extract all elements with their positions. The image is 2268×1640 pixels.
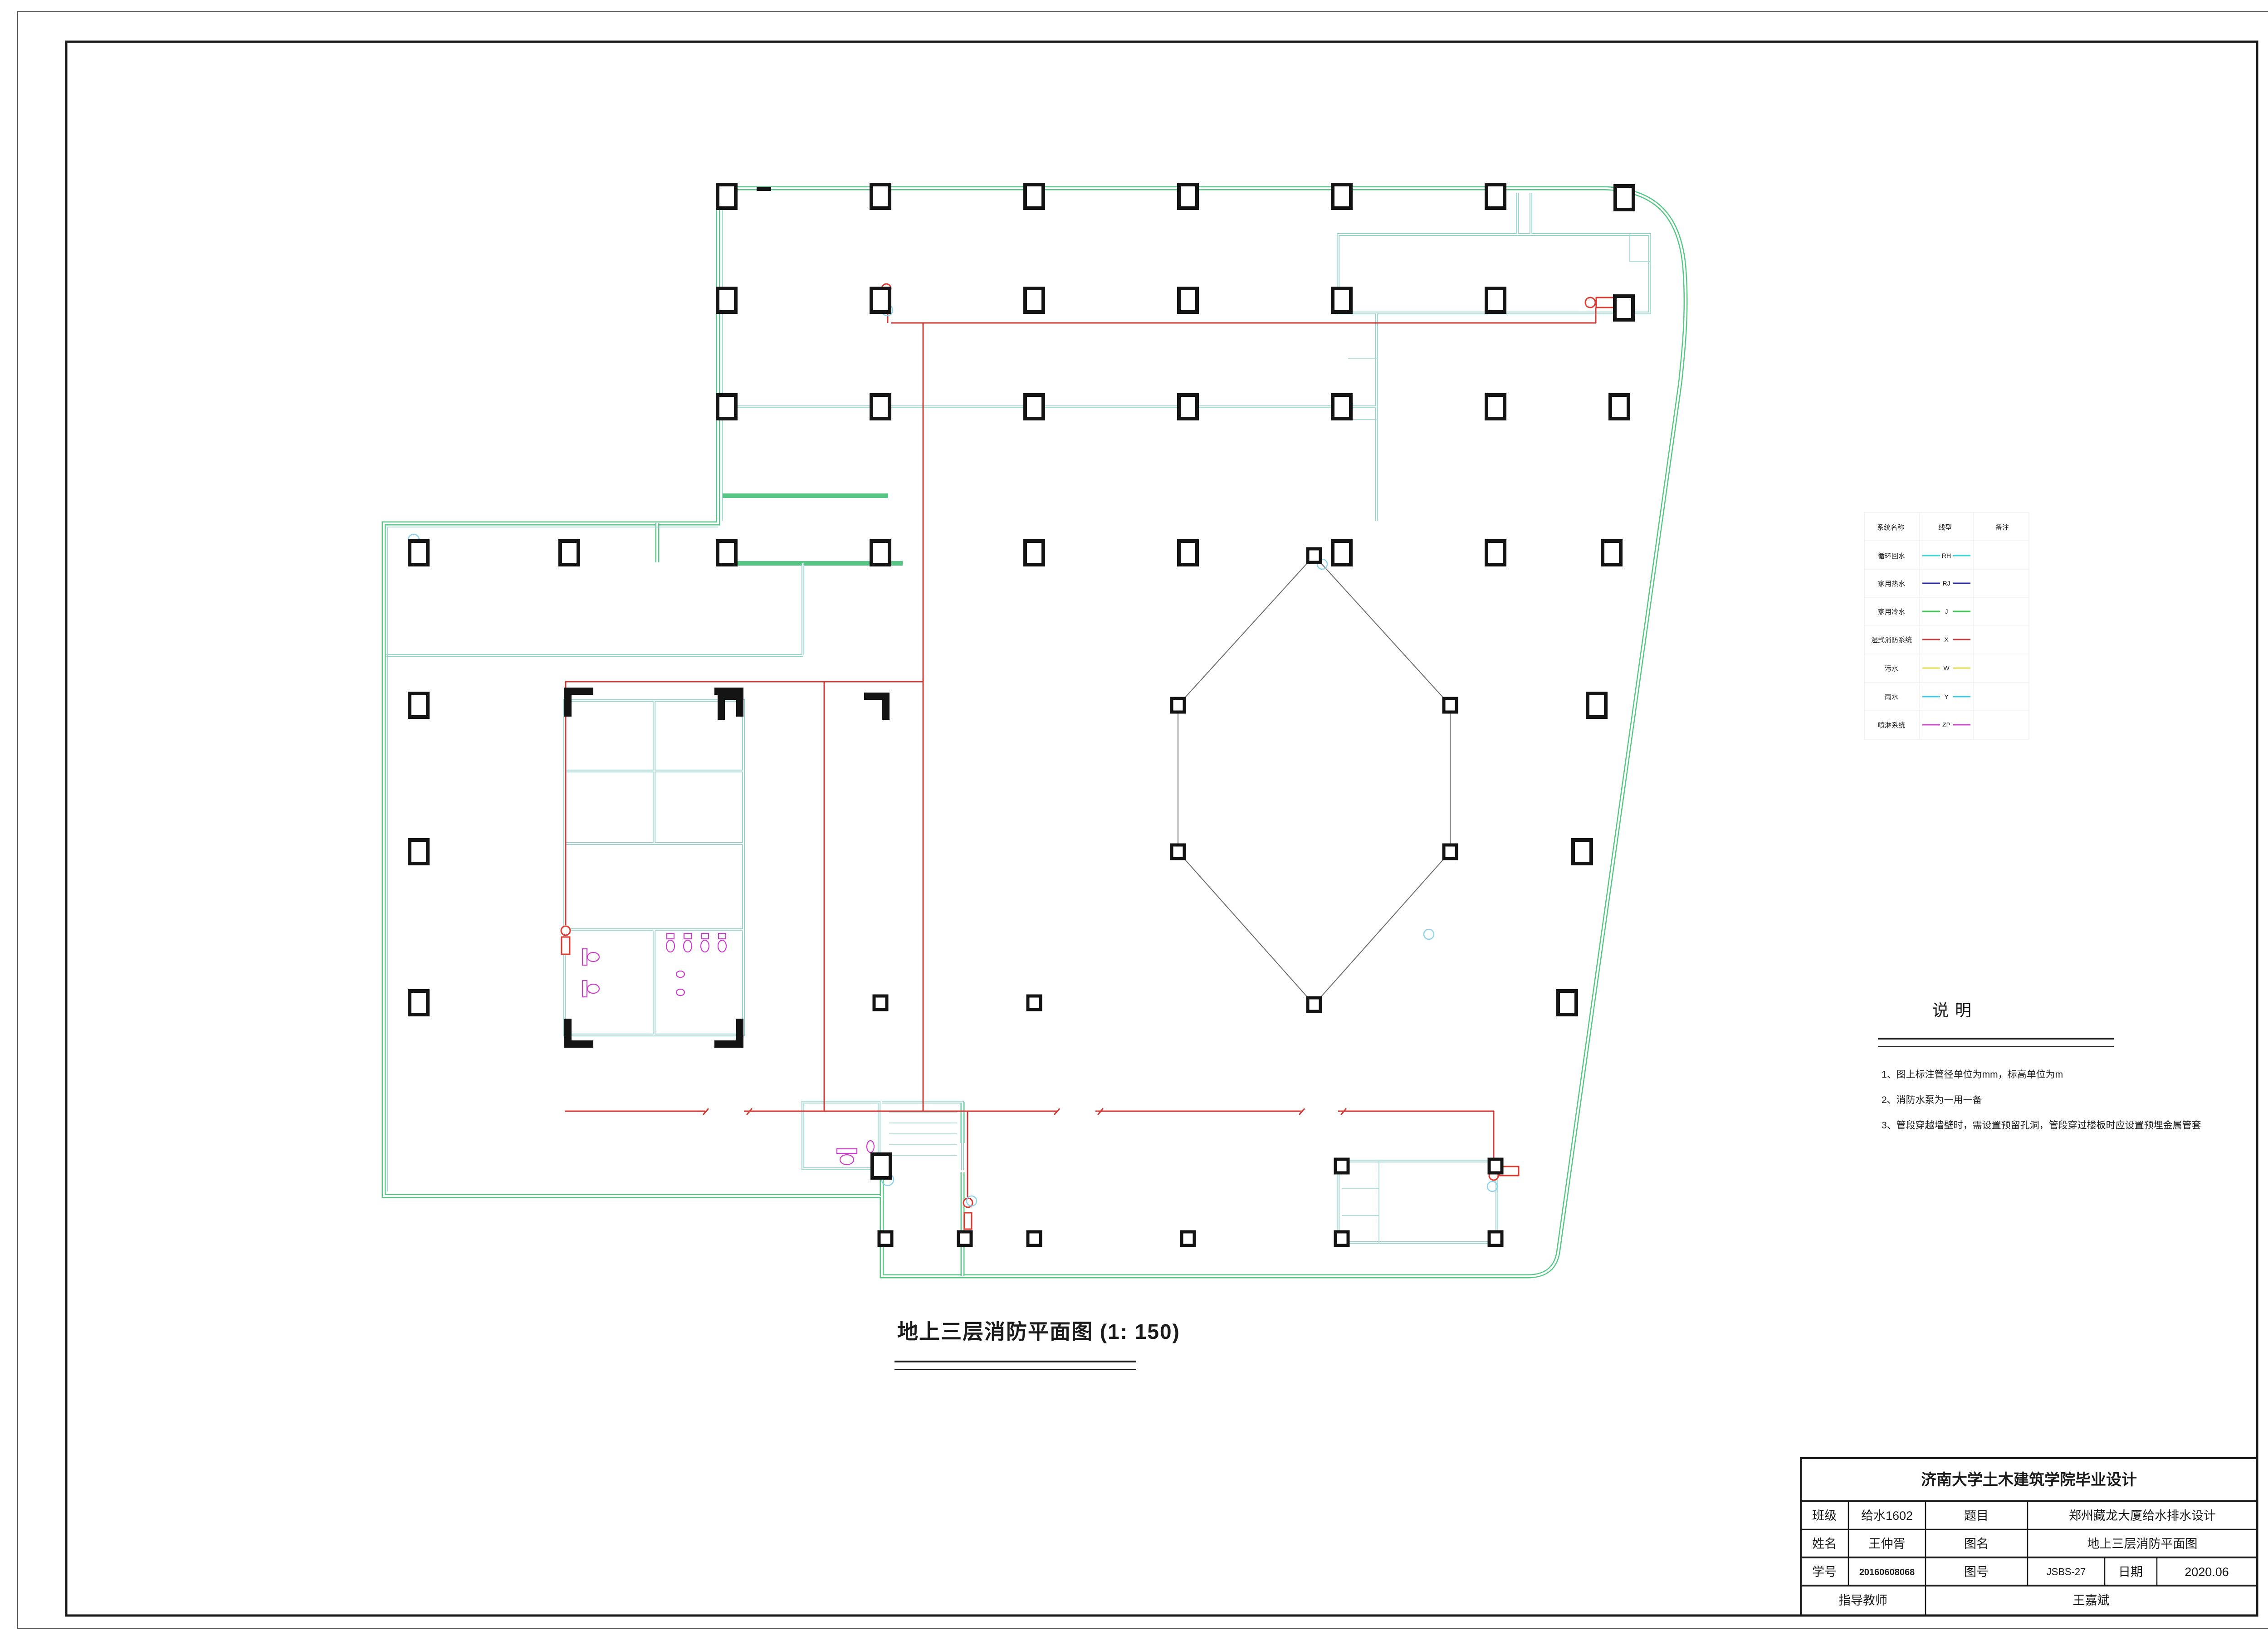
legend-header-linetype: 线型 bbox=[1938, 524, 1952, 532]
legend-row-code: RJ bbox=[1942, 580, 1950, 587]
legend-header-system: 系统名称 bbox=[1877, 524, 1904, 532]
structural-column bbox=[1308, 998, 1320, 1011]
structural-column bbox=[871, 395, 890, 419]
legend-row-code: X bbox=[1944, 636, 1949, 643]
titleblock-advisor-label: 指导教师 bbox=[1838, 1594, 1887, 1607]
structural-column bbox=[1333, 288, 1351, 312]
structural-column bbox=[1025, 395, 1043, 419]
structural-column bbox=[871, 541, 890, 565]
structural-column bbox=[1615, 296, 1633, 320]
legend-row-name: 污水 bbox=[1885, 665, 1898, 673]
structural-column bbox=[718, 395, 736, 419]
structural-column bbox=[1333, 395, 1351, 419]
structural-column-L bbox=[564, 1019, 593, 1048]
titleblock-name-value: 王仲胥 bbox=[1869, 1537, 1906, 1551]
structural-column bbox=[872, 1154, 890, 1178]
structural-column bbox=[1179, 541, 1197, 565]
titleblock-date-value: 2020.06 bbox=[2185, 1565, 2229, 1579]
structural-column bbox=[718, 185, 736, 208]
legend-row-code: Y bbox=[1944, 693, 1949, 700]
legend-row-code: RH bbox=[1942, 552, 1951, 559]
legend-header-remark: 备注 bbox=[1995, 524, 2009, 532]
structural-column bbox=[1028, 1232, 1041, 1245]
structural-column bbox=[410, 840, 428, 864]
structural-column bbox=[879, 1232, 892, 1245]
atrium-hexagon bbox=[1178, 556, 1450, 1005]
structural-column-L bbox=[714, 1019, 743, 1048]
legend-row-code: J bbox=[1945, 608, 1948, 615]
titleblock-class-label: 班级 bbox=[1812, 1509, 1837, 1523]
sprinkler-circle bbox=[408, 305, 1497, 1206]
structural-column bbox=[1489, 1232, 1502, 1245]
structural-column bbox=[410, 991, 428, 1015]
legend: 系统名称 线型 备注 循环回水RH家用热水RJ家用冷水J湿式消防系统X污水W雨水… bbox=[1864, 512, 2029, 739]
titleblock-school: 济南大学土木建筑学院毕业设计 bbox=[1921, 1471, 2137, 1489]
titleblock-class-value: 给水1602 bbox=[1861, 1509, 1913, 1523]
structural-column bbox=[560, 541, 578, 565]
structural-column bbox=[1179, 395, 1197, 419]
titleblock-drawing-name-label: 图名 bbox=[1964, 1537, 1989, 1551]
legend-row-name: 湿式消防系统 bbox=[1871, 636, 1912, 644]
structural-column bbox=[1028, 996, 1041, 1010]
notes-item: 3、管段穿越墙壁时，需设置预留孔洞，管段穿过楼板时应设置预埋金属管套 bbox=[1882, 1120, 2201, 1131]
exterior-wall bbox=[384, 188, 1686, 1276]
titleblock-date-label: 日期 bbox=[2118, 1565, 2143, 1579]
structural-column bbox=[718, 288, 736, 312]
plan-caption-group: 地上三层消防平面图 (1: 150) bbox=[894, 1320, 1180, 1370]
structural-column bbox=[1486, 185, 1505, 208]
structural-column bbox=[1172, 698, 1184, 712]
structural-column bbox=[410, 541, 428, 565]
structural-column bbox=[1333, 541, 1351, 565]
titleblock-topic-value: 郑州藏龙大厦给水排水设计 bbox=[2069, 1509, 2216, 1523]
structural-column bbox=[874, 996, 887, 1010]
structural-column bbox=[1486, 395, 1505, 419]
structural-column bbox=[1489, 1159, 1502, 1173]
structural-column bbox=[1573, 840, 1591, 864]
titleblock-studentid-value: 20160608068 bbox=[1859, 1567, 1915, 1577]
structural-column bbox=[1182, 1232, 1194, 1245]
legend-row-code: ZP bbox=[1942, 721, 1950, 728]
titleblock-drawingno-value: JSBS-27 bbox=[2047, 1566, 2086, 1577]
structural-column bbox=[1172, 845, 1184, 859]
structural-column bbox=[1335, 1159, 1348, 1173]
structural-column bbox=[1308, 549, 1320, 562]
structural-column bbox=[1444, 698, 1457, 712]
legend-row-name: 家用热水 bbox=[1878, 580, 1905, 588]
structural-column bbox=[1025, 541, 1043, 565]
titleblock-studentid-label: 学号 bbox=[1812, 1565, 1837, 1579]
floor-plan bbox=[384, 185, 1686, 1276]
structural-column bbox=[410, 693, 428, 717]
structural-column bbox=[718, 541, 736, 565]
sanitary-fixtures bbox=[582, 933, 874, 1165]
legend-row-code: W bbox=[1943, 664, 1950, 672]
structural-column bbox=[1588, 693, 1606, 717]
structural-column bbox=[1025, 288, 1043, 312]
door-tick bbox=[757, 187, 771, 191]
legend-row-name: 喷淋系统 bbox=[1878, 722, 1905, 729]
structural-column bbox=[1615, 186, 1633, 210]
structural-column bbox=[1179, 288, 1197, 312]
structural-column bbox=[1335, 1232, 1348, 1245]
sheet-border bbox=[17, 12, 2268, 1628]
titleblock-topic-label: 题目 bbox=[1964, 1509, 1989, 1523]
titleblock-drawingno-label: 图号 bbox=[1964, 1565, 1989, 1579]
drawing-sheet: 地上三层消防平面图 (1: 150) 系统名称 线型 备注 循环回水RH家用热水… bbox=[0, 0, 2268, 1640]
structural-column bbox=[1486, 541, 1505, 565]
structural-column bbox=[1486, 288, 1505, 312]
notes-item: 1、图上标注管径单位为mm，标高单位为m bbox=[1882, 1069, 2063, 1080]
structural-column bbox=[1603, 541, 1621, 565]
notes-item: 2、消防水泵为一用一备 bbox=[1882, 1095, 1982, 1105]
title-block: 济南大学土木建筑学院毕业设计 班级 给水1602 题目 郑州藏龙大厦给水排水设计… bbox=[1801, 1458, 2257, 1616]
legend-row-name: 家用冷水 bbox=[1878, 608, 1905, 616]
structural-column bbox=[871, 288, 890, 312]
structural-column bbox=[958, 1232, 971, 1245]
legend-row-name: 雨水 bbox=[1885, 693, 1898, 701]
structural-column bbox=[1558, 991, 1576, 1015]
titleblock-drawing-name-value: 地上三层消防平面图 bbox=[2087, 1537, 2198, 1551]
partitions bbox=[386, 193, 1650, 1243]
structural-column bbox=[1610, 395, 1628, 419]
notes: 说明 1、图上标注管径单位为mm，标高单位为m2、消防水泵为一用一备3、管段穿越… bbox=[1878, 1001, 2201, 1131]
structural-column bbox=[871, 185, 890, 208]
legend-row-name: 循环回水 bbox=[1878, 552, 1905, 560]
structural-column-L bbox=[864, 693, 890, 720]
structural-column bbox=[1444, 845, 1457, 859]
titleblock-name-label: 姓名 bbox=[1812, 1537, 1837, 1551]
structural-column bbox=[1333, 185, 1351, 208]
structural-column bbox=[1179, 185, 1197, 208]
structural-column-L bbox=[564, 688, 593, 717]
structural-column bbox=[1025, 185, 1043, 208]
titleblock-advisor-value: 王嘉斌 bbox=[2073, 1594, 2110, 1607]
plan-caption: 地上三层消防平面图 (1: 150) bbox=[897, 1320, 1180, 1343]
notes-title: 说明 bbox=[1932, 1001, 1978, 1020]
